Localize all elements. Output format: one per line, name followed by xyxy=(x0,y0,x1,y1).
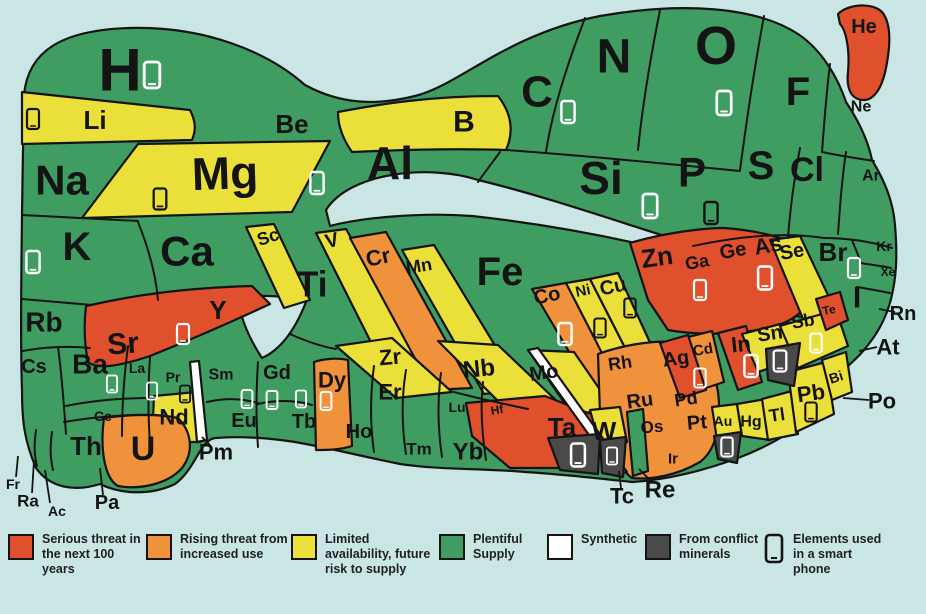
element-label-sm: Sm xyxy=(209,367,234,384)
element-label-tl: Tl xyxy=(768,404,787,426)
legend-label-synthetic: Synthetic xyxy=(581,532,637,547)
element-label-li: Li xyxy=(83,105,106,135)
element-label-p: P xyxy=(678,149,706,196)
element-label-gd: Gd xyxy=(263,362,291,384)
element-label-pr: Pr xyxy=(166,369,181,385)
legend-label-conflict: From conflict minerals xyxy=(679,532,763,562)
element-label-be: Be xyxy=(275,109,308,139)
element-label-cs: Cs xyxy=(21,356,47,378)
element-label-c: C xyxy=(521,68,553,117)
element-scarcity-map: HHeLiBeBCNOFNeNaMgAlSiPSClArKCaScTiVCrMn… xyxy=(0,0,926,614)
element-label-po: Po xyxy=(868,389,896,414)
element-label-al: Al xyxy=(367,137,413,189)
element-label-mo: Mo xyxy=(528,360,560,386)
element-label-tm: Tm xyxy=(406,440,432,459)
legend-swatch-limited xyxy=(291,534,317,560)
element-label-ga: Ga xyxy=(683,250,711,274)
element-label-eu: Eu xyxy=(231,410,257,432)
element-label-k: K xyxy=(63,225,92,269)
element-label-se: Se xyxy=(778,239,806,265)
legend-label-phone: Elements used in a smart phone xyxy=(793,532,893,576)
element-label-ti: Ti xyxy=(296,264,327,305)
legend-swatch-plentiful xyxy=(439,534,465,560)
element-label-s: S xyxy=(748,144,775,188)
leader-line-ra xyxy=(32,460,34,493)
element-label-pa: Pa xyxy=(95,492,120,514)
leader-line-fr xyxy=(16,456,18,477)
element-label-sb: Sb xyxy=(790,309,816,333)
element-label-os: Os xyxy=(640,417,664,438)
element-label-zr: Zr xyxy=(378,344,403,371)
legend-swatch-conflict xyxy=(645,534,671,560)
legend-swatch-serious xyxy=(8,534,34,560)
element-label-la: La xyxy=(129,360,146,376)
legend-item-limited: Limited availability, future risk to sup… xyxy=(291,532,439,576)
element-label-nb: Nb xyxy=(462,354,497,384)
element-label-rb: Rb xyxy=(25,307,62,338)
leader-line-po xyxy=(843,398,869,400)
legend-item-phone: Elements used in a smart phone xyxy=(763,532,893,576)
element-label-xe: Xe xyxy=(881,265,896,279)
element-label-pt: Pt xyxy=(686,411,708,435)
element-label-lu: Lu xyxy=(448,399,465,415)
element-label-rh: Rh xyxy=(607,351,634,374)
element-label-fe: Fe xyxy=(477,250,524,294)
legend-item-conflict: From conflict minerals xyxy=(645,532,763,562)
element-label-cl: Cl xyxy=(790,151,824,189)
element-label-u: U xyxy=(131,430,156,468)
element-label-ra: Ra xyxy=(17,492,39,511)
element-scarcity-infographic: HHeLiBeBCNOFNeNaMgAlSiPSClArKCaScTiVCrMn… xyxy=(0,0,926,614)
element-label-pd: Pd xyxy=(673,387,699,410)
element-label-in: In xyxy=(730,331,752,358)
element-label-cd: Cd xyxy=(692,340,715,360)
legend-item-plentiful: Plentiful Supply xyxy=(439,532,547,562)
element-label-au: Au xyxy=(714,413,733,429)
legend-label-serious: Serious threat in the next 100 years xyxy=(42,532,146,576)
element-label-ta: Ta xyxy=(548,412,577,442)
element-label-kr: Kr xyxy=(876,238,892,254)
legend-item-serious: Serious threat in the next 100 years xyxy=(8,532,146,576)
element-label-pm: Pm xyxy=(199,440,233,465)
element-label-at: At xyxy=(876,335,900,360)
element-label-th: Th xyxy=(70,431,102,461)
legend-swatch-rising xyxy=(146,534,172,560)
element-label-ru: Ru xyxy=(625,388,654,413)
legend-swatch-synthetic xyxy=(547,534,573,560)
element-label-h: H xyxy=(98,37,141,104)
element-label-dy: Dy xyxy=(318,368,347,393)
legend-item-rising: Rising threat from increased use xyxy=(146,532,291,562)
element-label-ne: Ne xyxy=(851,99,872,116)
element-label-i: I xyxy=(853,282,861,315)
element-label-er: Er xyxy=(378,380,402,405)
element-label-sr: Sr xyxy=(106,326,140,361)
element-label-ir: Ir xyxy=(668,451,678,468)
element-label-hg: Hg xyxy=(740,414,761,431)
element-label-ge: Ge xyxy=(718,238,748,264)
element-label-ag: Ag xyxy=(661,346,690,371)
element-label-f: F xyxy=(786,70,810,114)
element-label-sn: Sn xyxy=(756,321,784,346)
element-label-y: Y xyxy=(209,295,226,325)
element-label-ce: Ce xyxy=(94,408,112,424)
legend-label-limited: Limited availability, future risk to sup… xyxy=(325,532,439,576)
element-label-rn: Rn xyxy=(890,303,917,325)
legend: Serious threat in the next 100 yearsRisi… xyxy=(8,532,920,612)
element-label-n: N xyxy=(597,31,632,84)
legend-label-rising: Rising threat from increased use xyxy=(180,532,291,562)
element-label-nd: Nd xyxy=(159,405,188,430)
legend-label-plentiful: Plentiful Supply xyxy=(473,532,547,562)
legend-item-synthetic: Synthetic xyxy=(547,532,645,560)
legend-phone-icon xyxy=(763,532,785,566)
element-label-br: Br xyxy=(819,237,848,267)
element-label-w: W xyxy=(592,416,617,446)
element-label-ca: Ca xyxy=(160,228,214,275)
element-label-ac: Ac xyxy=(48,503,66,519)
element-label-ar: Ar xyxy=(862,168,880,185)
element-label-fr: Fr xyxy=(6,476,21,492)
element-label-re: Re xyxy=(645,477,676,504)
element-label-ba: Ba xyxy=(72,349,108,380)
element-label-ho: Ho xyxy=(346,421,373,443)
element-label-tc: Tc xyxy=(610,484,634,509)
element-label-mg: Mg xyxy=(191,146,259,200)
element-label-si: Si xyxy=(579,152,622,204)
element-label-he: He xyxy=(851,16,877,38)
element-label-tb: Tb xyxy=(292,411,316,433)
element-label-na: Na xyxy=(35,157,89,204)
element-label-b: B xyxy=(453,106,475,139)
element-label-zn: Zn xyxy=(639,240,675,274)
element-label-o: O xyxy=(695,16,737,76)
element-label-yb: Yb xyxy=(453,439,484,466)
